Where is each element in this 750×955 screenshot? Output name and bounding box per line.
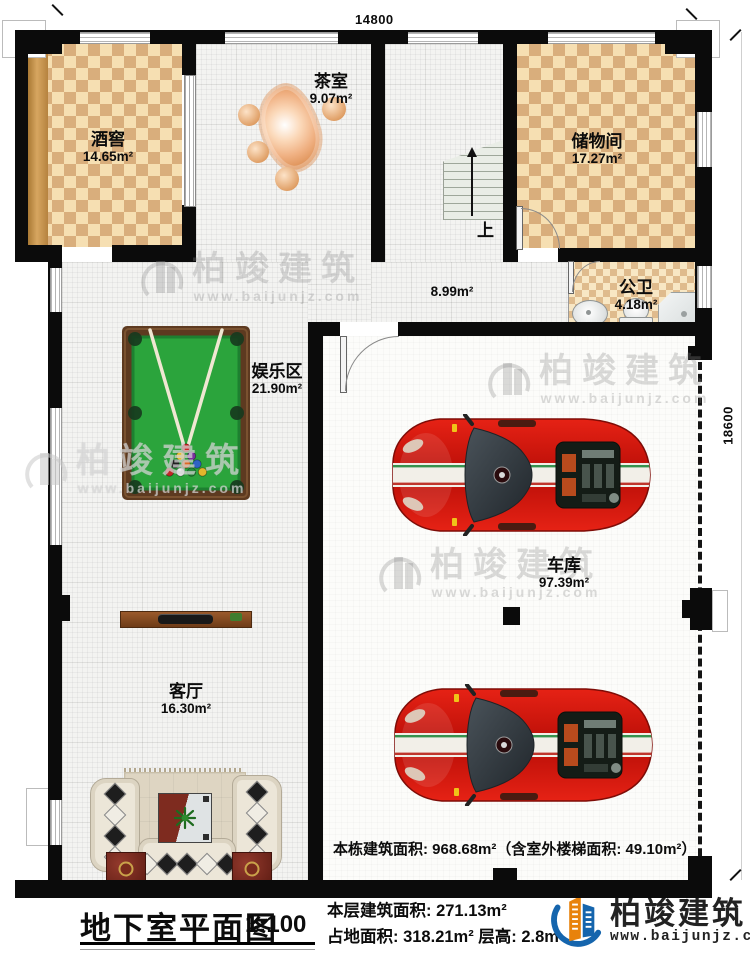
wine-rack <box>28 44 48 247</box>
brand-logo-icon <box>546 892 604 950</box>
exterior-lightwell <box>712 590 728 632</box>
room-name: 储物间 <box>572 132 623 151</box>
mat-emblem <box>119 862 134 877</box>
room-name: 客厅 <box>161 682 211 701</box>
room-label-bathroom: 公卫 4.18m² <box>615 278 658 312</box>
pillar-right <box>690 588 712 630</box>
room-label-tea: 茶室 9.07m² <box>310 72 353 106</box>
sink-drain <box>586 310 591 315</box>
dimension-tick <box>729 869 741 881</box>
wall-storage-bottom-b <box>558 248 712 262</box>
wall-bottom <box>15 880 712 898</box>
room-name: 酒窖 <box>83 130 133 149</box>
stats-line-1: 本层建筑面积: 271.13m² <box>327 899 559 925</box>
stairs-direction-arrow <box>471 156 473 216</box>
room-label-garage: 车库 97.39m² <box>539 556 589 590</box>
dimension-line-right <box>741 32 742 880</box>
wall-garage-left <box>308 322 323 880</box>
sports-car-1 <box>386 414 656 536</box>
dimension-right: 18600 <box>721 404 736 448</box>
window <box>408 32 478 44</box>
room-label-wine: 酒窖 14.65m² <box>83 130 133 164</box>
coffee-table <box>158 793 212 843</box>
wall-corner-br <box>688 856 712 898</box>
brand-logo: 柏竣建筑 www.baijunjz.com <box>546 892 750 950</box>
room-label-corridor: 8.99m² <box>431 284 474 299</box>
wall-wine-right-top <box>182 44 196 75</box>
tv-decor-plant <box>230 613 242 621</box>
room-area: 4.18m² <box>615 297 658 312</box>
wall-left-lower <box>48 245 62 880</box>
wall-left-pilaster <box>48 595 70 621</box>
pebble <box>238 104 260 126</box>
pillow <box>104 824 127 847</box>
wall-mid-b <box>398 322 712 336</box>
pebble <box>247 141 269 163</box>
room-area: 9.07m² <box>310 91 353 106</box>
room-name: 茶室 <box>310 72 353 91</box>
mat-emblem <box>245 862 260 877</box>
wine-sliding-door <box>184 75 196 207</box>
room-name: 公卫 <box>615 278 658 297</box>
sports-car-2 <box>388 684 658 806</box>
wall-left-upper <box>15 30 28 262</box>
pillow <box>246 823 269 846</box>
dimension-tick <box>729 29 741 41</box>
pillow <box>246 802 269 825</box>
window <box>548 32 655 44</box>
plant-icon <box>172 805 198 831</box>
exterior-lightwell <box>26 788 50 846</box>
garage-column <box>503 607 520 625</box>
pillow <box>104 782 127 805</box>
table-corner <box>203 834 209 840</box>
room-area: 21.90m² <box>252 381 303 396</box>
building-area-note: 本栋建筑面积: 968.68m²（含室外楼梯面积: 49.10m²） <box>333 838 696 859</box>
basement-floor-plan: 上 <box>0 0 750 955</box>
wall-wine-right-bottom <box>182 205 196 262</box>
plan-scale: 1:100 <box>245 911 306 939</box>
tv-screen <box>158 614 213 624</box>
brand-website: www.baijunjz.com <box>610 929 750 945</box>
room-name: 车库 <box>539 556 589 575</box>
room-area: 17.27m² <box>572 151 623 166</box>
window <box>697 112 712 167</box>
dimension-top: 14800 <box>355 12 394 27</box>
dimension-tick <box>51 4 63 16</box>
pool-table <box>122 326 250 500</box>
room-area: 14.65m² <box>83 149 133 164</box>
wall-bottom-pilaster <box>493 868 517 882</box>
room-label-storage: 储物间 17.27m² <box>572 132 623 166</box>
room-label-entertainment: 娱乐区 21.90m² <box>252 362 303 396</box>
window <box>50 268 62 312</box>
window <box>50 800 62 845</box>
room-area: 97.39m² <box>539 575 589 590</box>
window <box>50 408 62 545</box>
stats-line-2: 占地面积: 318.21m² 层高: 2.8m <box>327 925 559 951</box>
dimension-tick <box>685 8 697 20</box>
wall-storage-left <box>503 44 517 248</box>
stairs-arrowhead <box>467 147 477 157</box>
wall-right-upper <box>695 30 712 360</box>
stairs-up-label: 上 <box>477 216 495 241</box>
floor-stats: 本层建筑面积: 271.13m² 占地面积: 318.21m² 层高: 2.8m <box>327 899 559 950</box>
room-label-living: 客厅 16.30m² <box>161 682 211 716</box>
table-corner <box>203 796 209 802</box>
title-underline-thin <box>80 949 315 950</box>
shower-drain <box>681 311 687 317</box>
brand-name: 柏竣建筑 <box>610 898 750 929</box>
window <box>80 32 150 44</box>
window <box>225 32 338 44</box>
pebble <box>275 167 299 191</box>
title-underline <box>80 942 315 945</box>
room-area: 16.30m² <box>161 701 211 716</box>
pillar-right-bump <box>682 600 691 618</box>
pillow <box>104 803 127 826</box>
window <box>697 266 712 308</box>
room-area: 8.99m² <box>431 284 474 299</box>
wall-tea-stairhall <box>371 44 385 262</box>
room-name: 娱乐区 <box>252 362 303 381</box>
wall-storage-bottom-a <box>503 248 518 262</box>
wall-right-cap <box>688 346 712 360</box>
pillow <box>246 781 269 804</box>
